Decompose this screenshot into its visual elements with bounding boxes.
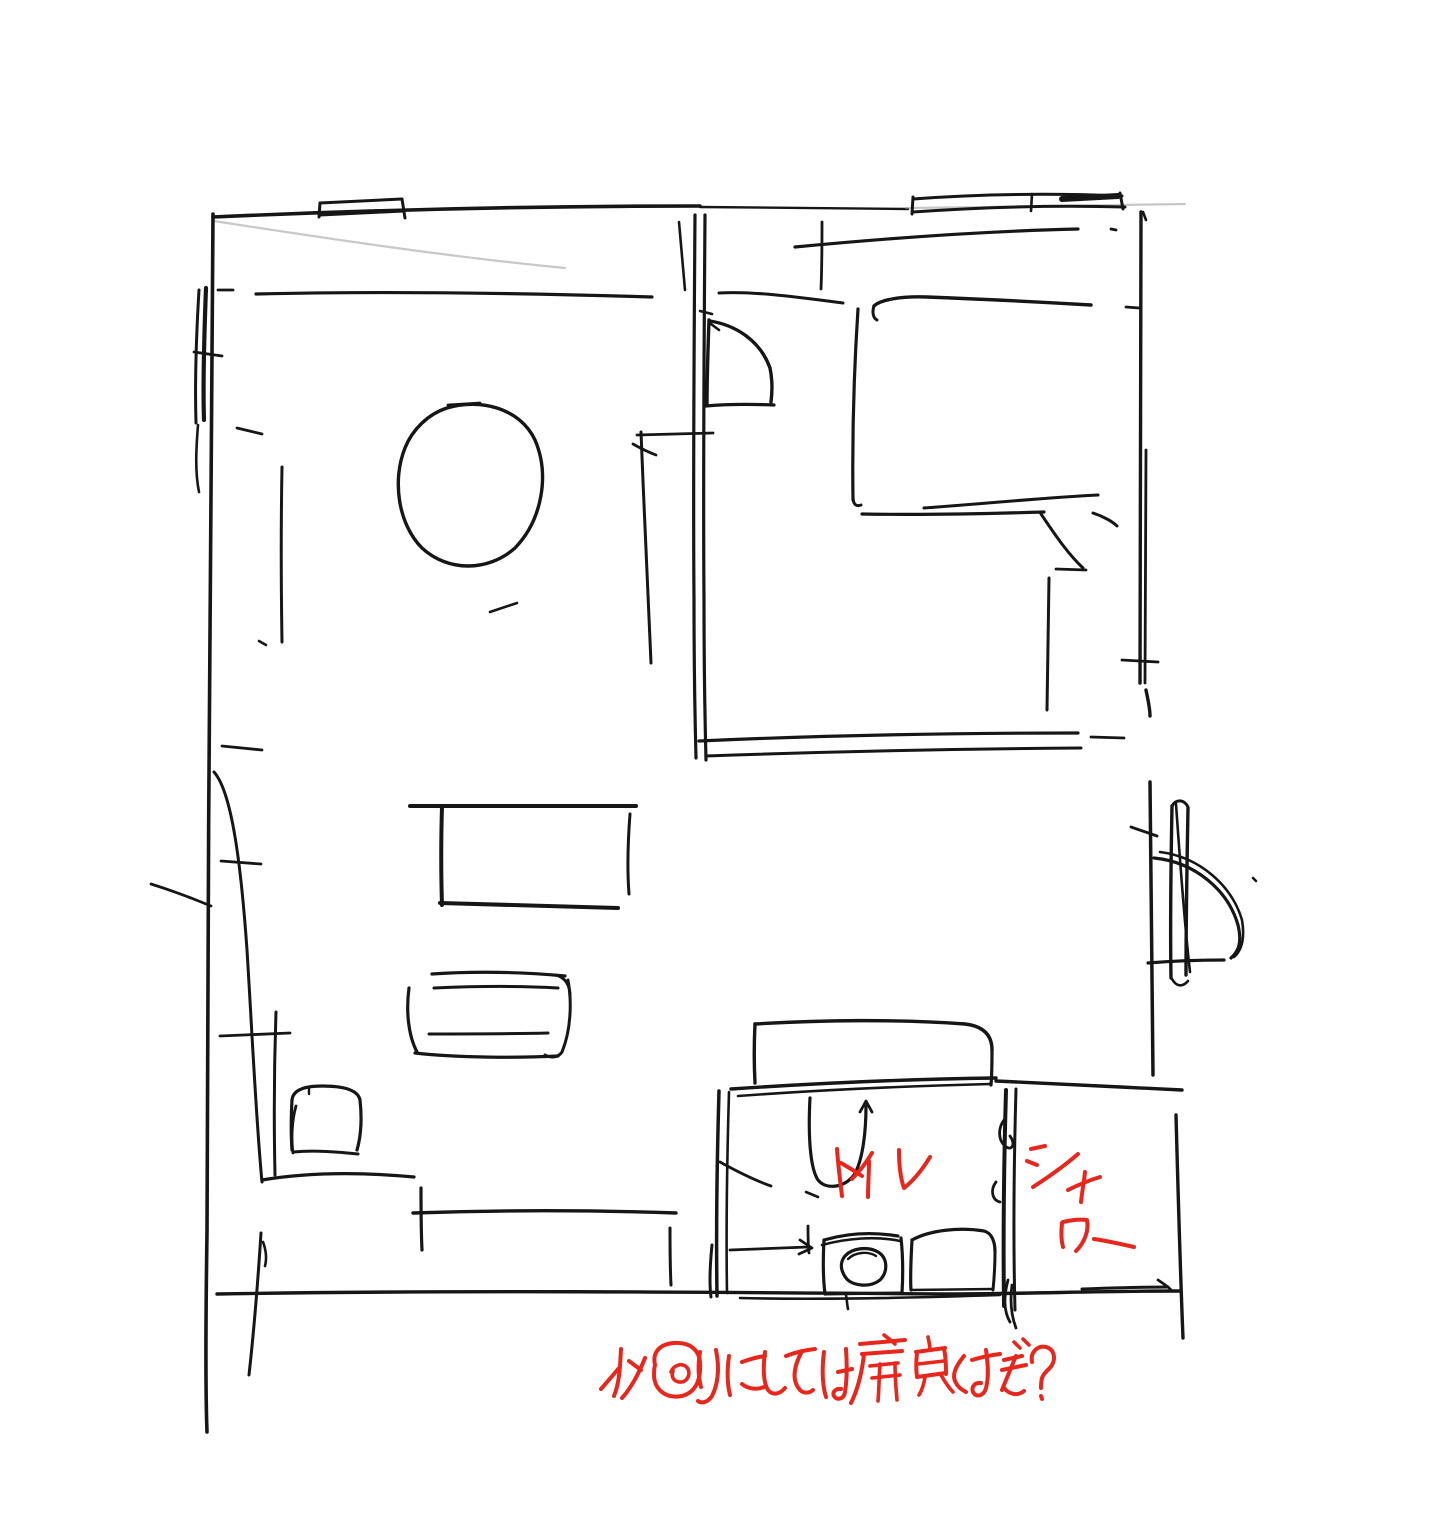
window-left <box>194 288 222 492</box>
shower-label: シャ ワー <box>1025 1146 1140 1260</box>
note-annotation: 水回りにしては扉良すぎ? <box>600 1335 1059 1405</box>
dining-table <box>410 806 636 908</box>
armchair <box>291 1086 361 1154</box>
sink-counter <box>754 1021 992 1085</box>
bed <box>853 297 1139 710</box>
counter-line <box>413 1188 676 1285</box>
svg-text:シャ: シャ <box>1025 1154 1105 1200</box>
svg-text:ワー: ワー <box>1060 1214 1140 1260</box>
round-table <box>398 403 542 566</box>
sketch-page: トイレ シャ ワー <box>0 0 1453 1522</box>
svg-text:水回りにしては扉良すぎ?: 水回りにしては扉良すぎ? <box>600 1359 1059 1405</box>
drawing-canvas[interactable]: トイレ シャ ワー <box>0 0 1453 1522</box>
sofa <box>408 972 571 1057</box>
toilet-label: トイレ <box>830 1149 950 1200</box>
bedroom-door <box>700 311 774 406</box>
window-top-right <box>912 193 1125 214</box>
wall-ticks <box>151 428 517 906</box>
interior-walls <box>218 215 1124 760</box>
sofa-front-line <box>262 1174 414 1180</box>
window-top-left <box>319 199 405 218</box>
washbasin <box>911 1229 995 1290</box>
svg-text:トイレ: トイレ <box>830 1154 950 1200</box>
